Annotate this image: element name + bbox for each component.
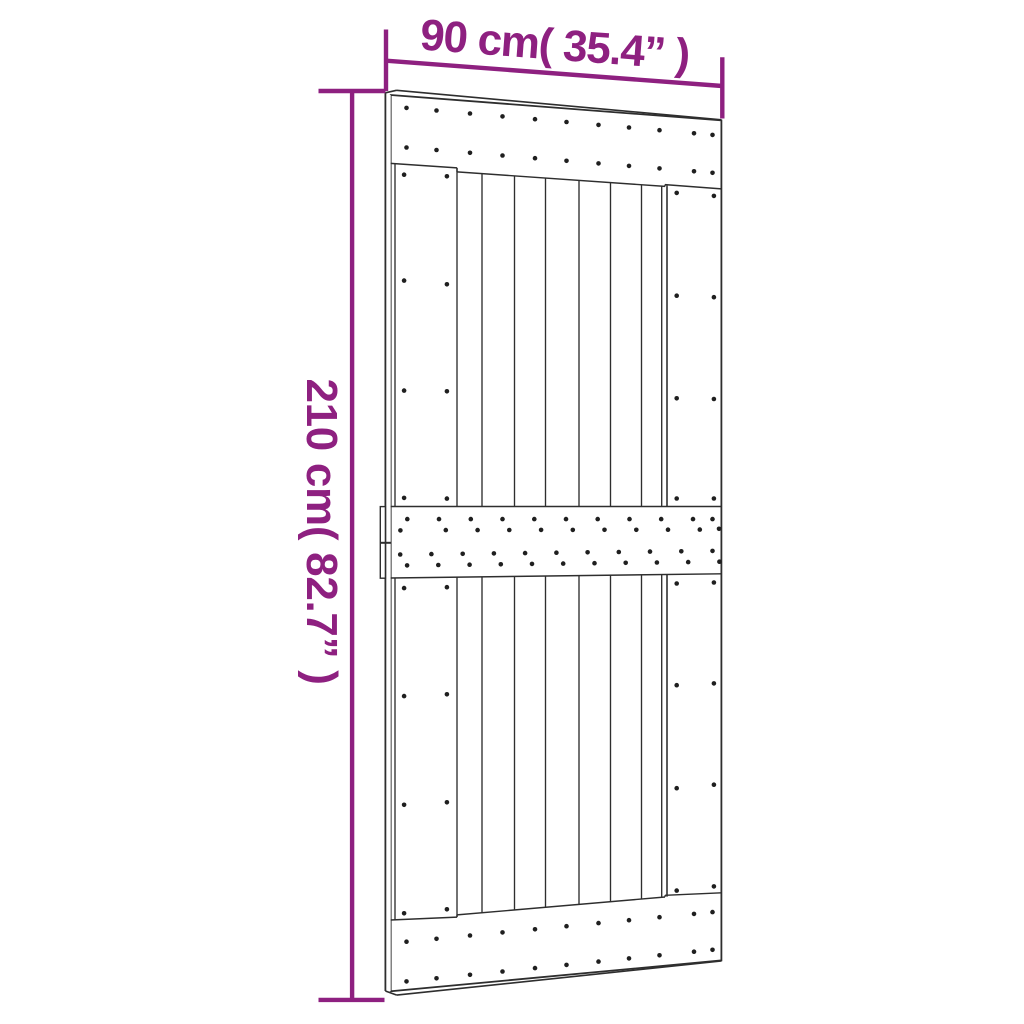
svg-text:90 cm( 35.4” ): 90 cm( 35.4” ) (419, 11, 691, 80)
svg-text:210 cm( 82.7” ): 210 cm( 82.7” ) (297, 378, 346, 684)
